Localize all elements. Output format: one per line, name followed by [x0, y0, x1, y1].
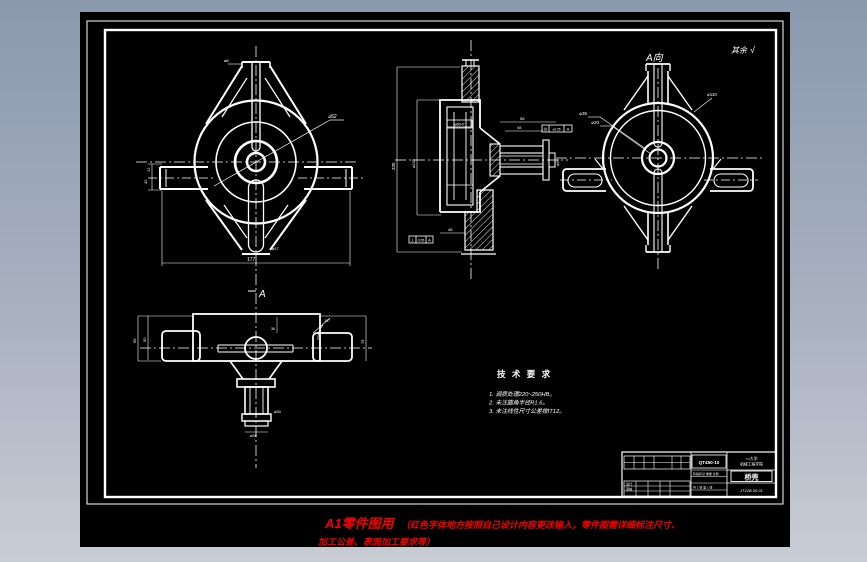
signature-row-label: 审核 — [626, 487, 633, 492]
sheet-row: 共 1 张 第 1 张 — [693, 485, 713, 490]
svg-text:⌀0.05: ⌀0.05 — [552, 128, 560, 132]
cad-drawing-canvas: 177 ⌀52 12 42 ⌀8 ⌀17 A — [0, 0, 867, 562]
view-a-label: A向 — [645, 52, 664, 64]
tech-item: 1. 调质处理220~250HB。 — [489, 391, 555, 398]
dim-label: ⌀35 — [579, 111, 587, 116]
surface-note-text: 其余 — [731, 46, 748, 55]
dim-label: 36 — [271, 327, 275, 331]
dim-label: ⌀110 — [707, 92, 717, 97]
dim-label: 177 — [247, 257, 256, 263]
tech-item: 2. 未注圆角半径R1.6。 — [488, 400, 548, 407]
dim-label: 58 — [520, 116, 525, 121]
view-arrow-label: A — [258, 289, 266, 300]
dim-label: ⌀20 — [591, 120, 599, 125]
bore-callout: ⌀60H7 — [454, 123, 464, 127]
dim-label: ⌀36 — [250, 433, 258, 438]
roughness-icon: √ — [750, 45, 755, 55]
dim-label: ⌀17 — [272, 246, 280, 251]
org-name-line1: ××大学 — [745, 456, 757, 461]
dim-label: 15° — [324, 318, 330, 323]
dim-label: 48 — [448, 227, 453, 232]
surface-roughness-note: 其余 √ — [731, 45, 755, 55]
dim-label: ⌀52 — [328, 114, 337, 120]
dim-label: 335 — [391, 162, 396, 170]
dim-label: ⌀30 — [274, 409, 282, 414]
svg-text:⊥: ⊥ — [411, 238, 415, 243]
svg-text:A: A — [428, 238, 431, 243]
tech-item: 3. 未注线性尺寸公差按IT12。 — [489, 408, 565, 415]
svg-text:A: A — [567, 127, 570, 132]
tech-title: 技 术 要 求 — [497, 369, 552, 379]
dim-label: 45 — [517, 125, 522, 130]
dim-label: 50 — [142, 337, 147, 342]
red-note-line1: （红色字体地方按照自己设计内容更改输入，零件图需详细标注尺寸、 — [401, 520, 680, 530]
signature-row-label: 设计 — [626, 482, 633, 487]
dim-label: 42 — [143, 179, 148, 184]
part-name: 桥壳 — [745, 473, 759, 482]
dim-label: 95 — [132, 338, 137, 343]
viewer-background: 177 ⌀52 12 42 ⌀8 ⌀17 A — [0, 0, 867, 562]
dim-label: 12 — [146, 167, 151, 172]
red-note-line2: 加工公差、表面加工要求等） — [317, 537, 435, 547]
dim-label: ⌀8 — [224, 58, 229, 63]
scale-row: 阶段标记 重量 比例 — [693, 471, 719, 476]
drawing-sheet — [80, 12, 790, 547]
svg-text:0.05: 0.05 — [418, 239, 425, 243]
dim-label: 75 — [360, 339, 365, 344]
drawing-number: JT12B.00.01 — [739, 488, 763, 493]
dim-label: ⌀30 — [555, 158, 560, 166]
red-note-title: A1零件图用 — [324, 516, 396, 531]
org-name-line2: 机械工程学院 — [740, 462, 763, 467]
material-value: QT450-10 — [699, 460, 720, 465]
dim-label: ⌀245 — [411, 158, 416, 168]
